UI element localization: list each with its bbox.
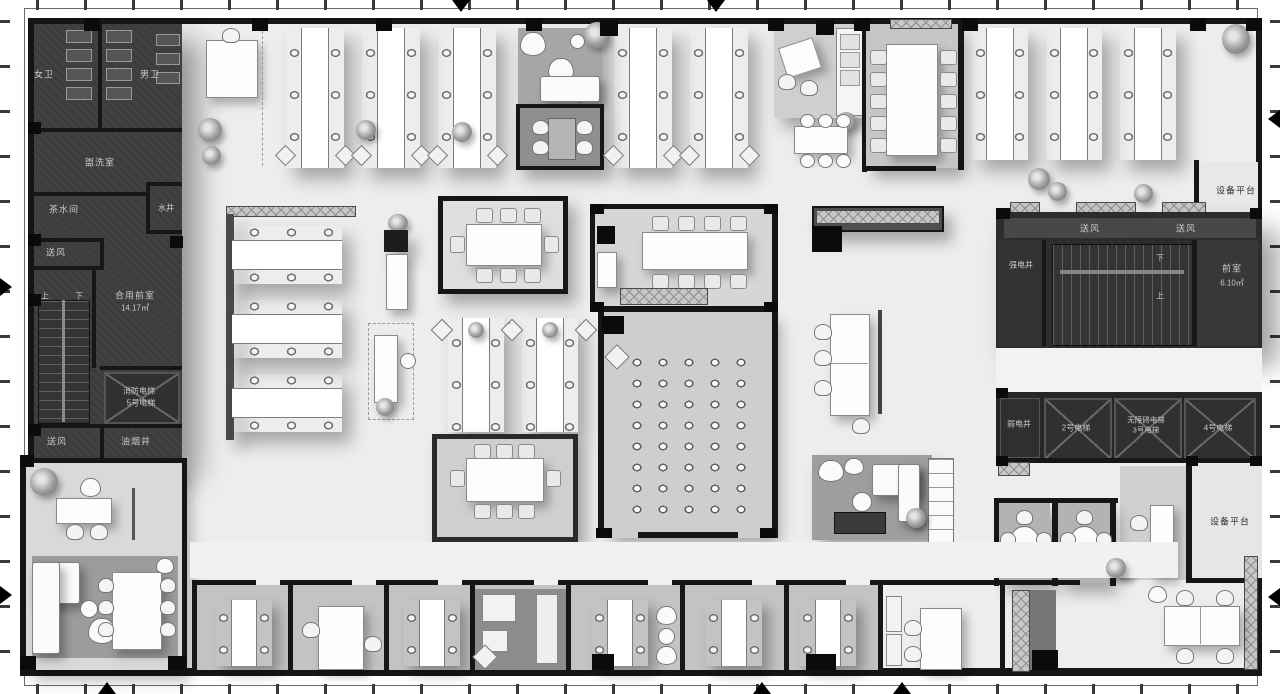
axis-marker-icon [98, 682, 116, 694]
counter-top [816, 210, 940, 224]
chair [730, 274, 747, 289]
column [1250, 208, 1262, 219]
stool [400, 353, 416, 369]
appliance [840, 70, 860, 86]
chair [222, 28, 240, 43]
storage-box [482, 594, 516, 622]
column [854, 18, 870, 31]
chair [1148, 586, 1167, 603]
stool [800, 114, 815, 128]
chair [870, 94, 887, 109]
toilet-stall [66, 30, 92, 43]
column [764, 302, 778, 312]
toilet-stall [106, 49, 132, 62]
meeting-table [112, 572, 162, 650]
plant [1048, 182, 1067, 201]
chair [870, 50, 887, 65]
chair [66, 524, 84, 540]
chair [1216, 590, 1234, 606]
column [1250, 456, 1262, 466]
chair [476, 208, 493, 223]
column [996, 208, 1010, 219]
wall [784, 584, 789, 670]
chair [678, 274, 695, 289]
chair [652, 216, 669, 231]
chair [704, 216, 721, 231]
chair [476, 268, 493, 283]
stool [818, 154, 833, 168]
room-label-elevator-5: 5号电梯 [127, 398, 155, 409]
desk-cluster [1120, 28, 1176, 160]
column [1190, 18, 1206, 31]
chair [450, 470, 465, 487]
floor-plan-sheet: 女卫 男卫 盥洗室 茶水间 水井 送风 合用前室 14.17㎡ 上 下 消防电梯… [0, 0, 1280, 694]
column [28, 122, 41, 134]
column [590, 204, 604, 214]
chair [98, 622, 114, 637]
wall [288, 584, 293, 670]
chair [940, 138, 957, 153]
coffee-table [852, 492, 872, 512]
column [996, 456, 1008, 466]
chair [496, 444, 513, 459]
break-table [794, 126, 848, 154]
chair [524, 268, 541, 283]
stool [836, 114, 851, 128]
wall [100, 424, 104, 460]
toilet-stall [66, 49, 92, 62]
ruler-ticks-bottom [36, 684, 1246, 694]
wall [192, 580, 1080, 585]
chair [544, 236, 559, 253]
chair [90, 524, 108, 540]
column [170, 236, 183, 248]
column [768, 18, 784, 31]
column [996, 388, 1008, 398]
door-opening [438, 580, 462, 585]
wall [996, 458, 1262, 463]
chair [844, 458, 864, 475]
corridor [190, 542, 1178, 578]
stool [800, 154, 815, 168]
printer [384, 230, 408, 252]
wall [146, 230, 182, 234]
stair-label-up: 上 [41, 291, 49, 302]
room-label-women-wc: 女卫 [34, 68, 54, 81]
storage-shelf [536, 594, 558, 664]
tv-cabinet [834, 512, 886, 534]
cabinet [886, 596, 902, 632]
chair [904, 620, 922, 636]
axis-marker-icon [0, 586, 12, 604]
side-table [658, 628, 675, 645]
wall [100, 366, 182, 370]
toilet-stall [66, 68, 92, 81]
chair [800, 80, 818, 96]
toilet-stall [156, 34, 180, 46]
chair [80, 478, 101, 497]
sofa [32, 562, 60, 654]
desk [830, 314, 870, 416]
bookshelf [928, 458, 954, 544]
armchair [656, 646, 677, 665]
chair [1176, 590, 1194, 606]
wall [34, 424, 182, 428]
desk-cluster [232, 226, 342, 284]
chair [904, 646, 922, 662]
wall [1192, 240, 1197, 346]
chair [546, 470, 561, 487]
appliance [597, 226, 615, 244]
column [28, 424, 41, 436]
wall [772, 312, 778, 536]
chair [576, 140, 593, 155]
column [1186, 456, 1198, 466]
room-label-weak-electric-shaft: 弱电井 [1007, 419, 1031, 430]
desk-cluster [706, 600, 762, 666]
desk-divider [1200, 606, 1201, 644]
chair [160, 600, 176, 615]
elevator-lobby [996, 348, 1262, 392]
room-area-shared-front-room: 14.17㎡ [121, 303, 149, 314]
printer [592, 654, 614, 670]
column [28, 234, 41, 246]
axis-marker-icon [452, 0, 470, 12]
column [526, 18, 542, 31]
room-label-water-shaft: 水井 [158, 203, 174, 214]
desk [206, 40, 258, 98]
floor-lamp [132, 488, 135, 540]
toilet-stall [66, 87, 92, 100]
wall [1186, 464, 1192, 582]
chair [1130, 515, 1148, 531]
stairs [1052, 244, 1194, 346]
room-label-fire-elevator: 消防电梯 [123, 386, 155, 397]
plant [1134, 184, 1153, 203]
room-label-men-wc: 男卫 [140, 68, 160, 81]
desk-cluster [286, 28, 344, 168]
stair-label-down: 下 [75, 291, 83, 302]
stool [836, 154, 851, 168]
chair [302, 622, 320, 638]
wall [146, 182, 150, 234]
room-label-oil-smoke-shaft: 油烟井 [121, 435, 151, 448]
training-chair-grid [624, 352, 756, 520]
door-opening [534, 580, 558, 585]
axis-marker-icon [753, 682, 771, 694]
front-room [1196, 240, 1258, 346]
chair [678, 216, 695, 231]
desk-cluster [404, 600, 460, 666]
stair-label-up: 上 [1156, 291, 1164, 302]
executive-desk [56, 498, 112, 524]
stair-handrail [62, 300, 65, 422]
plant [1106, 558, 1126, 578]
desk [920, 608, 962, 670]
toilet-stall [106, 30, 132, 43]
plant [202, 146, 221, 165]
stool [818, 114, 833, 128]
side-desk [597, 252, 617, 288]
print-station-desk [386, 254, 408, 310]
chair [496, 504, 513, 519]
chair [940, 94, 957, 109]
zone-divider [262, 26, 264, 166]
column [84, 18, 100, 31]
door-opening [352, 580, 376, 585]
wall [100, 238, 104, 268]
ruler-ticks-top [36, 0, 1246, 10]
armchair [656, 606, 677, 625]
room-label-front-room: 前室 [1222, 262, 1242, 275]
wall [878, 584, 883, 670]
desk-cluster [1046, 28, 1102, 160]
plant [542, 322, 558, 338]
conference-table [886, 44, 938, 156]
room-label-equipment-platform: 设备平台 [1210, 515, 1250, 528]
appliance [840, 52, 860, 68]
chair [524, 208, 541, 223]
column [168, 656, 186, 670]
room-label-elevator-3: 3号电梯 [1133, 425, 1160, 436]
room-label-elevator-4: 4号电梯 [1204, 423, 1232, 434]
room-label-washroom: 盥洗室 [85, 156, 115, 169]
wall [1000, 584, 1005, 670]
wall [34, 128, 182, 132]
door-opening [256, 580, 280, 585]
chair [870, 116, 887, 131]
chair [518, 504, 535, 519]
ruler-ticks-left [0, 20, 10, 674]
room-label-air-supply: 送风 [46, 246, 66, 259]
axis-marker-icon [707, 0, 725, 12]
room-area-front-room: 6.10㎡ [1220, 278, 1244, 289]
wall [566, 584, 571, 670]
bench-desk [1164, 606, 1240, 646]
column [596, 528, 612, 538]
plant [356, 120, 376, 140]
axis-marker-icon [1268, 588, 1280, 606]
cabinet [886, 634, 902, 666]
chair [940, 116, 957, 131]
desk-cluster [690, 28, 748, 168]
desk-divider [830, 363, 868, 364]
chair [500, 208, 517, 223]
av-cabinet [602, 316, 624, 334]
wall [772, 204, 778, 312]
plant [468, 322, 484, 338]
chair [532, 140, 549, 155]
room-label-elevator-2: 2号电梯 [1062, 423, 1090, 434]
axis-marker-icon [1268, 110, 1280, 128]
plant [30, 468, 58, 496]
wall [146, 182, 182, 186]
chair [474, 444, 491, 459]
column [764, 204, 778, 214]
armchair [818, 460, 844, 482]
column [760, 528, 776, 538]
chair [852, 418, 870, 434]
meeting-table [548, 118, 576, 160]
chair [1076, 510, 1093, 525]
air-supply-corridor [1004, 218, 1256, 238]
wall [34, 192, 150, 196]
axis-marker-icon [0, 278, 12, 296]
chair [940, 50, 957, 65]
chair [814, 380, 832, 396]
room-label-tea-room: 茶水间 [49, 203, 79, 216]
room-label-strong-electric-shaft: 强电井 [1009, 260, 1033, 271]
wall [384, 584, 389, 670]
column [20, 455, 34, 467]
armchair [520, 32, 546, 56]
column [376, 18, 392, 31]
desk-cluster [232, 374, 342, 432]
desk-cluster [972, 28, 1028, 160]
wall [1042, 240, 1046, 346]
chair [940, 72, 957, 87]
column [1246, 18, 1262, 31]
desk [318, 606, 364, 670]
plant [198, 118, 222, 142]
wall [864, 166, 936, 171]
wall [598, 312, 604, 536]
chair [98, 578, 114, 593]
wall [182, 458, 187, 672]
desk-cluster [232, 300, 342, 358]
desk [374, 335, 398, 403]
wall-vent [890, 19, 952, 29]
stair-handrail [1060, 270, 1184, 274]
strong-electric-shaft [998, 240, 1042, 346]
chair [156, 558, 174, 574]
chair [778, 74, 796, 90]
appliance [840, 34, 860, 50]
chair [160, 578, 176, 593]
cabinet [806, 654, 836, 670]
desk-cluster [438, 28, 496, 168]
column [28, 294, 41, 306]
side-table [80, 600, 98, 618]
plant [1028, 168, 1050, 190]
column [20, 656, 36, 670]
chair [1016, 510, 1033, 525]
chair [160, 622, 176, 637]
chair [98, 600, 114, 615]
wall [958, 20, 964, 170]
chair [652, 274, 669, 289]
toilet-stall [106, 87, 132, 100]
wc-divider-wall [98, 24, 102, 130]
chair [870, 72, 887, 87]
wall [92, 268, 96, 368]
chair [730, 216, 747, 231]
room-label-air-supply: 送风 [47, 435, 67, 448]
room-label-shared-front-room: 合用前室 [115, 289, 155, 302]
chair [474, 504, 491, 519]
toilet-stall [156, 53, 180, 65]
wall [26, 458, 186, 463]
wall-insulation [1244, 556, 1258, 670]
exterior-wall-top [28, 18, 1262, 24]
plant [452, 122, 472, 142]
desk-cluster [362, 28, 420, 168]
chair [532, 120, 549, 135]
wall [34, 238, 104, 242]
door-opening [752, 580, 776, 585]
column [962, 18, 978, 31]
door-opening [612, 532, 638, 538]
reception-counter-return [812, 226, 842, 252]
wall-insulation [1012, 590, 1030, 672]
chair [814, 324, 832, 340]
chair [704, 274, 721, 289]
chair [870, 138, 887, 153]
wall-vent [226, 206, 356, 217]
room-label-air-supply: 送风 [1176, 222, 1196, 235]
side-table [570, 34, 585, 49]
desk-cluster [216, 600, 272, 666]
chair [576, 120, 593, 135]
wall [680, 584, 685, 670]
chair [518, 444, 535, 459]
meeting-table [466, 224, 542, 266]
door-opening [846, 580, 870, 585]
room-label-equipment-platform: 设备平台 [1216, 184, 1256, 197]
wall [192, 584, 197, 670]
column [816, 20, 834, 35]
chair [1216, 648, 1234, 664]
plant [906, 508, 926, 528]
stair-label-down: 下 [1156, 253, 1164, 264]
toilet-stall [106, 68, 132, 81]
floor-mat [620, 288, 708, 305]
axis-marker-icon [893, 682, 911, 694]
sofa [540, 76, 600, 102]
meeting-table [642, 232, 748, 270]
desk-cluster [614, 28, 672, 168]
room-label-air-supply: 送风 [1080, 222, 1100, 235]
whiteboard [878, 310, 882, 414]
chair [814, 350, 832, 366]
chair [364, 636, 382, 652]
chair [450, 236, 465, 253]
plant [376, 398, 394, 416]
chair [500, 268, 517, 283]
column [252, 18, 268, 31]
meeting-table [466, 458, 544, 502]
door-opening [648, 580, 672, 585]
column [590, 302, 604, 312]
cabinet [1032, 650, 1058, 670]
chair [1176, 648, 1194, 664]
